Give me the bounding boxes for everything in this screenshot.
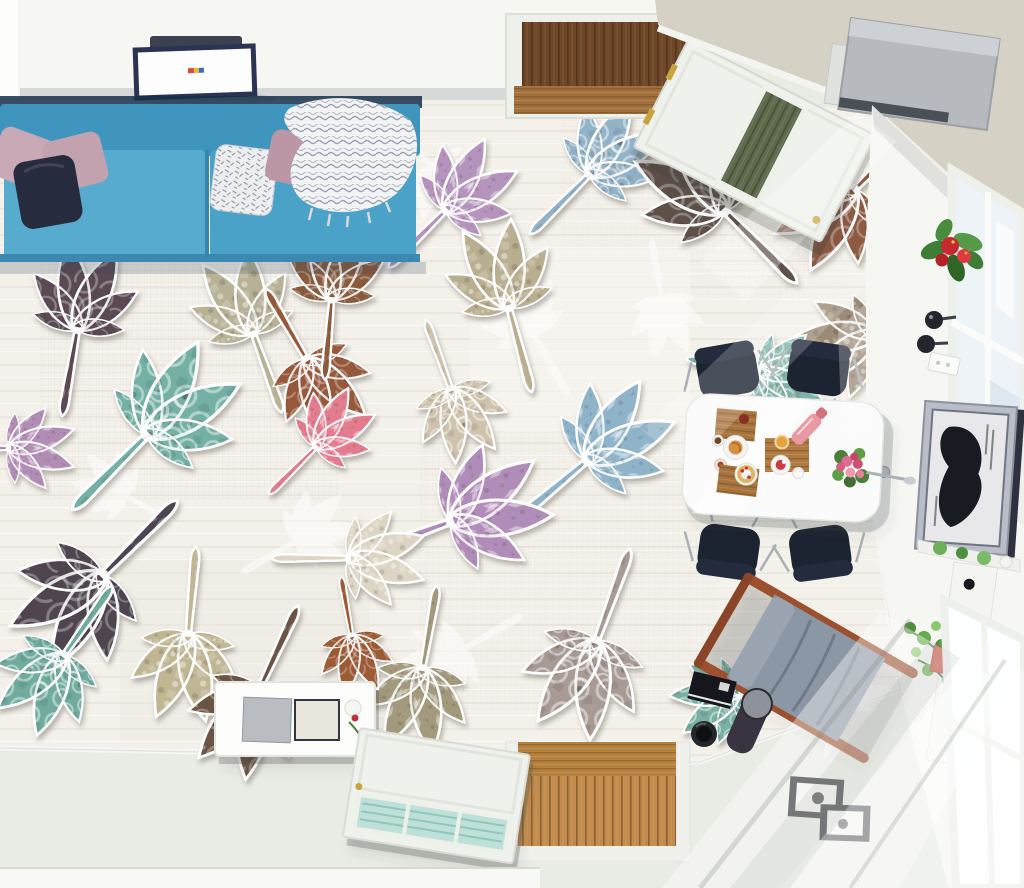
small-vase xyxy=(345,700,361,716)
sofa-floor-shadow xyxy=(0,262,426,274)
sconce-lamp xyxy=(925,311,943,329)
flower-spadix xyxy=(951,240,954,243)
wall-corner-sliver xyxy=(0,0,20,98)
screenshot-root xyxy=(0,0,1024,888)
black-pot xyxy=(691,721,717,747)
white-vase xyxy=(1000,556,1012,568)
framed-artwork xyxy=(915,401,1024,558)
red-rose xyxy=(352,715,359,722)
room-top-view xyxy=(0,0,1024,888)
threshold-molding xyxy=(506,846,690,860)
bottom-doorway xyxy=(506,742,690,862)
red-flower xyxy=(936,254,949,267)
ceiling-light xyxy=(135,36,255,98)
red-flower xyxy=(957,249,971,263)
baseboard xyxy=(0,868,540,888)
sofa xyxy=(0,96,426,274)
succulent xyxy=(933,541,947,555)
glass-reflection xyxy=(996,220,1014,320)
succulent xyxy=(977,551,991,565)
flower-spadix xyxy=(965,252,968,255)
orange-juice xyxy=(775,435,789,449)
console-screen-panel xyxy=(295,700,339,740)
red-flower xyxy=(941,237,959,255)
water-glass xyxy=(792,467,804,479)
navy-pillow xyxy=(12,153,85,231)
door-jamb xyxy=(676,742,690,862)
light-logo xyxy=(199,68,204,73)
sconce-lamp xyxy=(917,335,935,353)
light-logo xyxy=(194,68,199,73)
light-logo xyxy=(188,68,194,73)
console-gray-panel xyxy=(242,697,292,743)
media-console xyxy=(215,682,379,764)
sofa-front-edge xyxy=(0,254,420,262)
succulent xyxy=(956,547,968,559)
